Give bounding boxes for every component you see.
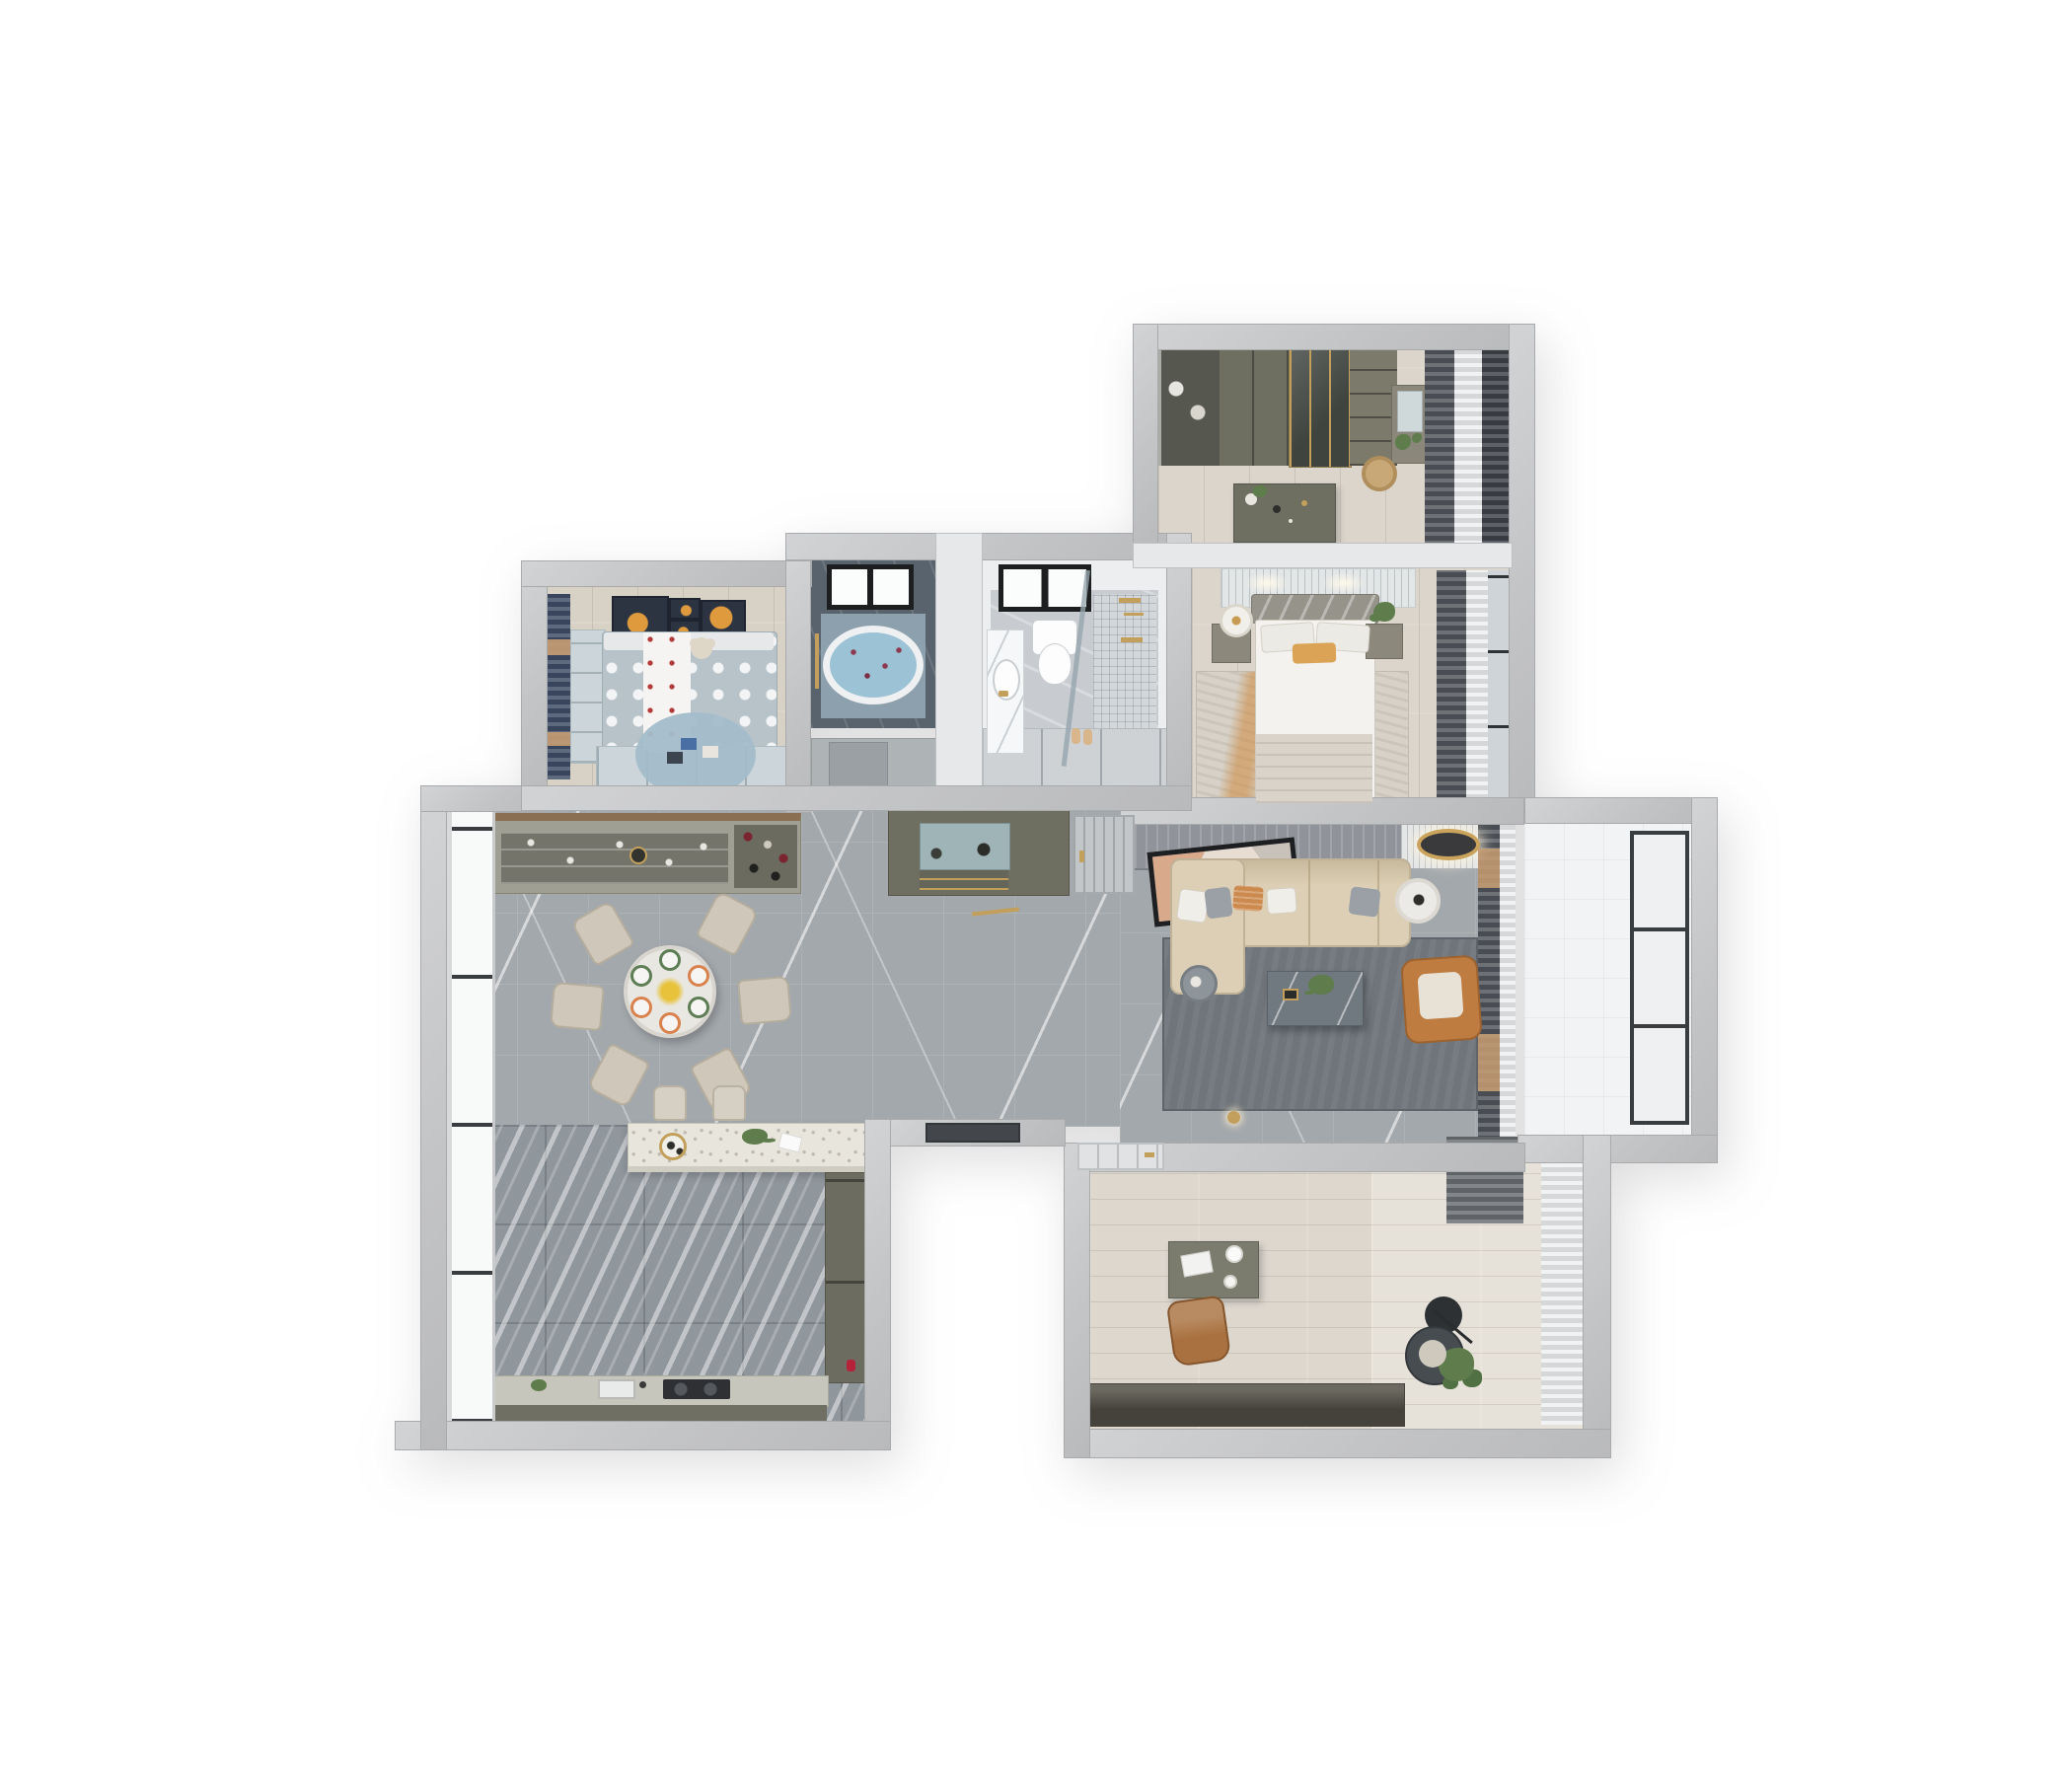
dining-chair	[737, 976, 792, 1025]
wall-closet-top	[1133, 324, 1535, 350]
hall-storage-door	[829, 742, 888, 787]
sofa-pillow-grey	[1348, 886, 1380, 917]
closet-sheer	[1454, 347, 1482, 545]
bath-slippers	[1072, 728, 1080, 744]
dining-chair	[550, 982, 605, 1031]
wall-kitchen-right	[864, 1119, 891, 1450]
living-ceiling-lamp	[1417, 829, 1480, 860]
rattan-basket	[1362, 456, 1397, 491]
sofa-pillow-orange	[1232, 885, 1264, 912]
wall-hall-top	[521, 785, 1192, 811]
vanity-faucet	[999, 691, 1008, 697]
kids-artwork-frame	[701, 600, 746, 635]
living-sheer	[1500, 825, 1516, 1145]
notch-doorway	[925, 1123, 1020, 1143]
wall-bath-divider	[935, 533, 983, 791]
balcony-window	[1630, 831, 1689, 1125]
wall-kids-top	[521, 560, 812, 587]
coffee-table-tray	[1283, 989, 1298, 1000]
master-curtains	[1437, 570, 1466, 803]
master-blanket	[1256, 734, 1372, 803]
floorplan-render	[0, 0, 2072, 1776]
flower-centerpiece	[655, 977, 685, 1006]
wall-study-bottom	[1064, 1429, 1611, 1458]
entry-door-handle	[1079, 851, 1084, 862]
nightstand-right	[1366, 624, 1403, 659]
place-setting	[659, 949, 681, 971]
teddy-bear	[691, 637, 712, 659]
entry-console-niche	[920, 823, 1010, 870]
closet-door-wardrobe	[1220, 349, 1289, 466]
sideboard-wine-rack	[734, 825, 797, 888]
curtain-orange-accent	[1478, 1034, 1500, 1091]
closet-open-shelves	[1350, 349, 1397, 466]
kids-artwork-frame	[612, 596, 669, 633]
study-low-cabinet	[1075, 1383, 1405, 1427]
dining-kitchen-window-wall	[446, 811, 495, 1423]
round-white-table	[1395, 878, 1441, 924]
kitchen-counter	[446, 1375, 829, 1407]
kids-artwork-frame	[669, 598, 701, 620]
master-sheer	[1466, 570, 1488, 803]
place-setting	[630, 965, 652, 987]
wall-study-left	[1064, 1143, 1090, 1458]
coffee-table-plant	[1308, 975, 1334, 995]
sofa-pillow-grey	[1204, 887, 1232, 920]
kids-desk-shelf	[570, 629, 606, 764]
armchair-cushion	[1417, 972, 1463, 1020]
island-tray	[659, 1133, 687, 1160]
headboard-wall-light	[1245, 572, 1289, 594]
wall-left-exterior	[420, 809, 447, 1450]
closet-glass-wardrobe	[1289, 349, 1352, 468]
nightstand-plant	[1373, 602, 1395, 622]
place-setting	[688, 965, 709, 987]
study-desk	[1168, 1241, 1259, 1298]
drum-table-lamp	[1220, 604, 1253, 637]
closet-hanging-wardrobe	[1158, 349, 1220, 466]
headboard-wall-light	[1322, 572, 1366, 594]
office-chair-brown	[1166, 1295, 1232, 1367]
wall-bath-right	[1166, 533, 1192, 809]
place-setting	[659, 1012, 681, 1034]
place-setting	[630, 997, 652, 1018]
study-door-handle	[1145, 1152, 1154, 1157]
sofa-pillow-white	[1266, 887, 1297, 915]
wall-balcony-right	[1691, 797, 1718, 1163]
tub-bathroom-window	[827, 564, 914, 610]
sideboard-glassware-shelves	[501, 833, 728, 884]
cooktop	[663, 1379, 730, 1399]
wall-closet-left	[1133, 324, 1158, 555]
island-plant	[1253, 485, 1267, 497]
orange-accent-pillow	[1293, 642, 1337, 664]
kitchen-tall-cabinet	[825, 1172, 868, 1383]
wall-study-right	[1583, 1135, 1611, 1458]
toilet-bowl	[1038, 643, 1072, 685]
desk-cup	[1223, 1275, 1237, 1289]
wall-kitchen-bottom	[395, 1421, 891, 1450]
closet-curtains	[1482, 347, 1510, 545]
wall-right-bedrooms	[1509, 324, 1535, 812]
oval-bathtub	[823, 626, 924, 704]
closet-island-dresser	[1233, 483, 1336, 543]
closet-curtains	[1425, 347, 1454, 545]
kids-toys	[681, 738, 697, 750]
master-window-glass	[1488, 570, 1509, 803]
red-kettle	[847, 1360, 855, 1371]
floorplan-screenshot	[0, 0, 2072, 1776]
study-sheer-curtain	[1541, 1148, 1583, 1425]
curtain-orange-accent	[1478, 849, 1500, 888]
gold-towel-rail	[815, 633, 819, 689]
wall-closet-master-divider	[1133, 543, 1513, 568]
wall-bath-top	[785, 533, 1192, 560]
vanity-mirror-glass	[1397, 391, 1423, 432]
lounge-chair-cushion	[1419, 1340, 1446, 1368]
place-setting	[688, 997, 709, 1018]
sideboard-pendant-light	[629, 847, 647, 864]
wall-balcony-top	[1524, 797, 1718, 824]
bar-stool	[653, 1085, 687, 1121]
entry-console-drawers	[920, 870, 1008, 890]
bar-stool	[712, 1085, 746, 1121]
counter-plant	[531, 1379, 547, 1391]
sink-faucet	[639, 1381, 646, 1388]
wall-balcony-bottom	[1517, 1135, 1718, 1163]
side-table-small	[1180, 965, 1218, 1002]
shower-bathroom-window	[999, 564, 1091, 612]
wall-kids-left	[521, 560, 548, 812]
gold-shower-fixture	[1119, 598, 1141, 603]
gold-floor-lamp	[1227, 1111, 1240, 1124]
kitchen-sink	[598, 1379, 635, 1399]
wall-kids-right	[785, 560, 811, 813]
desk-lamp	[1225, 1245, 1243, 1263]
